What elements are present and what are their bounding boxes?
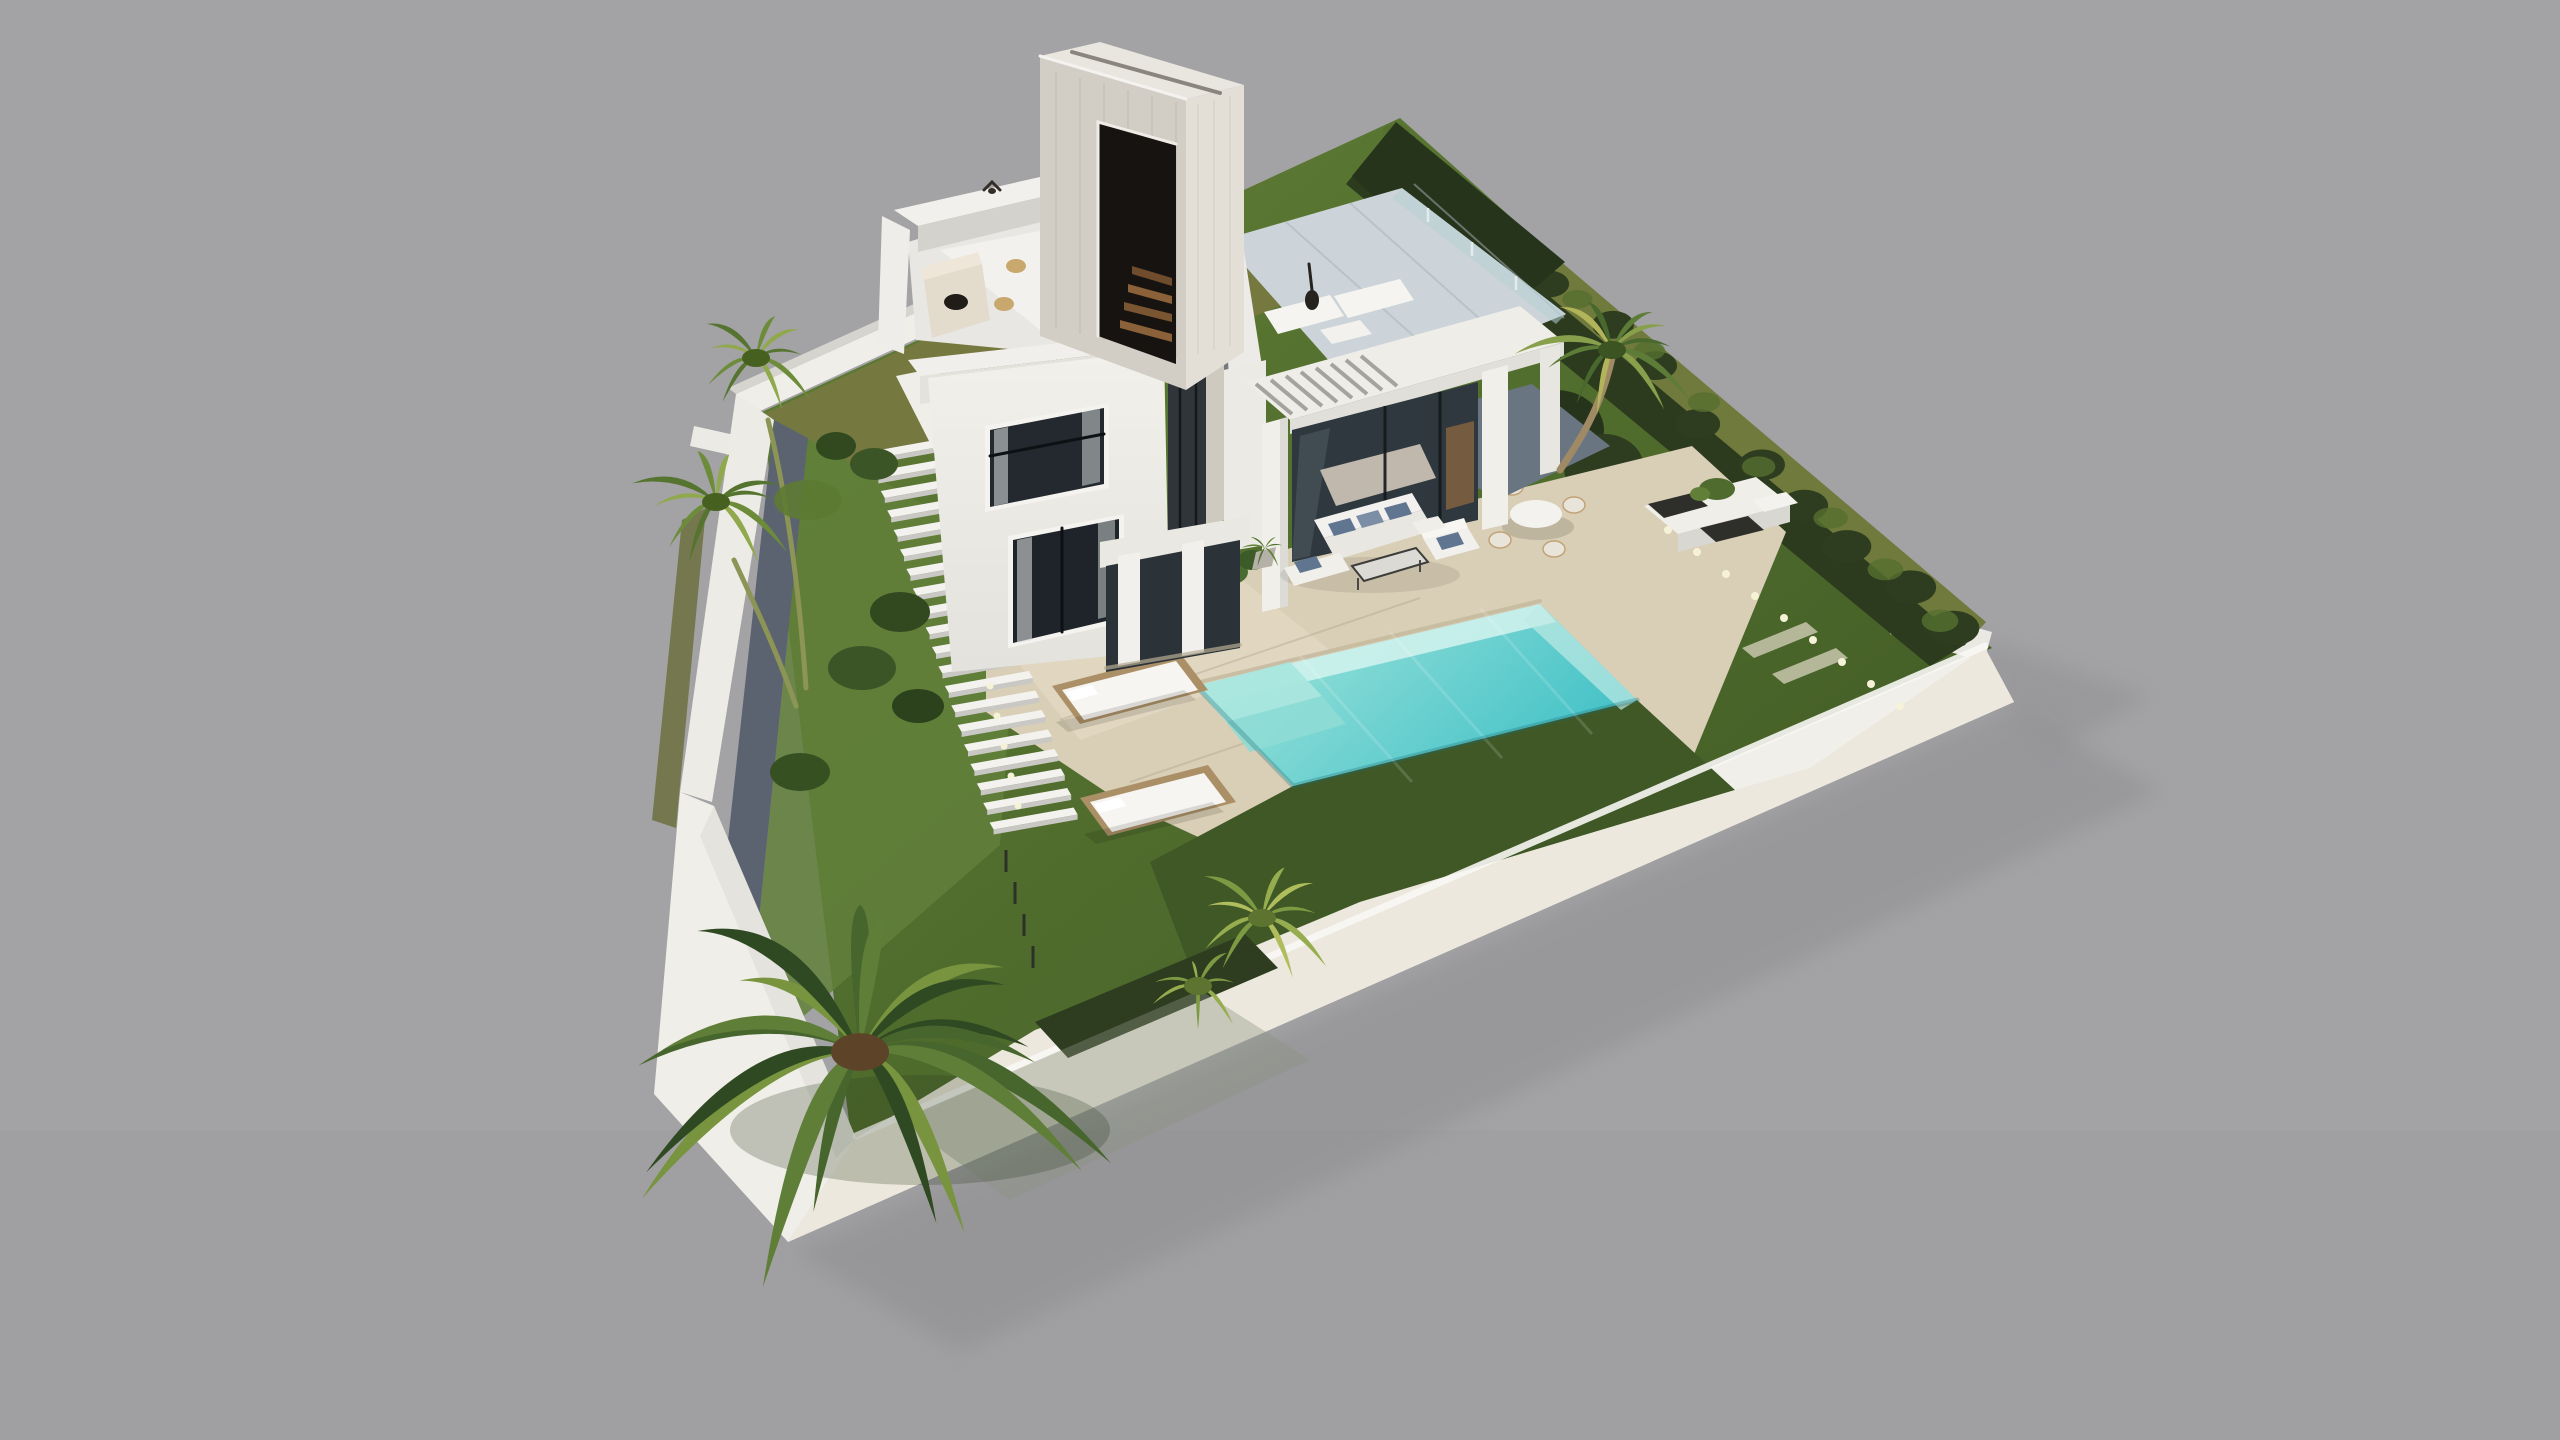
terrace-armchair-object bbox=[944, 294, 968, 310]
dining-chair-3 bbox=[1563, 497, 1585, 513]
pergola-column-front-right bbox=[1482, 365, 1508, 530]
dining-chair-2 bbox=[1543, 541, 1565, 557]
terrace-bistro-chair-1 bbox=[994, 297, 1014, 311]
ground-floor-column-1 bbox=[1118, 552, 1140, 666]
groundcover-west bbox=[774, 480, 842, 520]
pergola-column-back-right bbox=[1540, 345, 1560, 475]
shrub-olive-strip-2 bbox=[850, 448, 898, 480]
bird-on-parapet-body bbox=[988, 188, 996, 194]
shrub-left-lawn-3 bbox=[892, 689, 944, 723]
villa-3d-render bbox=[0, 0, 2560, 1440]
shrub-left-lawn-4 bbox=[770, 753, 830, 791]
shrub-olive-strip-1 bbox=[816, 432, 856, 460]
shrub-left-lawn-1 bbox=[870, 592, 930, 632]
dining-table-top bbox=[1510, 500, 1562, 528]
facade-lower-door-curtain-l bbox=[1017, 537, 1032, 643]
facade-upper-window-curtain-l bbox=[994, 427, 1008, 506]
roof-deck-vase bbox=[1305, 290, 1319, 310]
pergola-bedroom-shelf bbox=[1446, 421, 1474, 510]
facade-upper-window-curtain-r bbox=[1082, 409, 1100, 486]
shrub-left-lawn-2 bbox=[828, 646, 896, 690]
ground-floor-column-2 bbox=[1182, 540, 1204, 656]
render-canvas bbox=[0, 0, 2560, 1440]
bbq-planter-foliage-2 bbox=[1690, 487, 1710, 501]
dining-chair-1 bbox=[1489, 532, 1511, 548]
terrace-bistro-chair-4 bbox=[1006, 259, 1026, 273]
